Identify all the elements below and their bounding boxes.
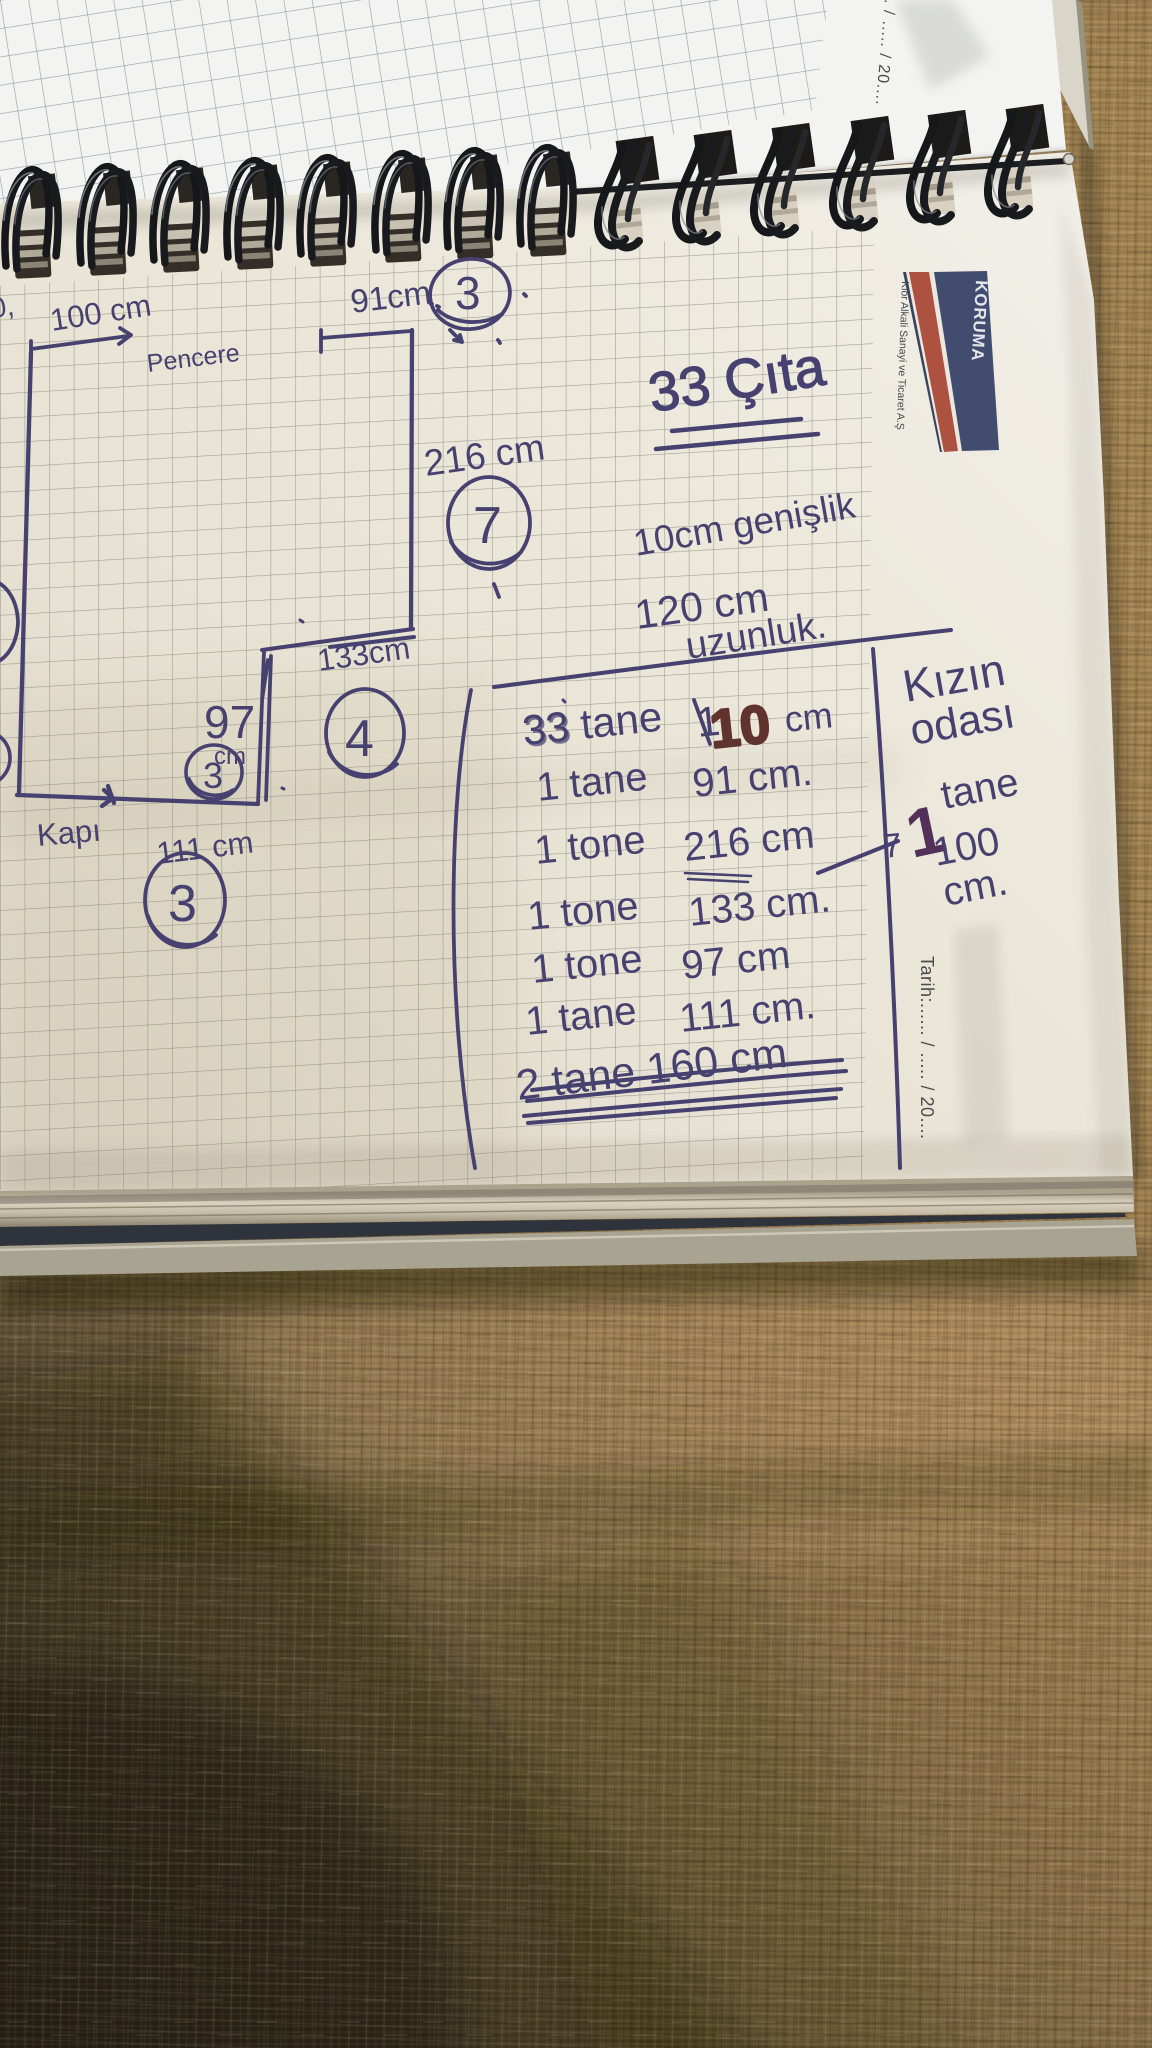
svg-text:Kapı: Kapı: [36, 813, 103, 853]
svg-text:97: 97: [204, 696, 255, 748]
svg-text:10: 10: [707, 694, 773, 760]
svg-text:4: 4: [345, 710, 374, 768]
svg-text:3: 3: [455, 267, 481, 319]
svg-text:3: 3: [203, 755, 223, 796]
svg-text:3: 3: [168, 875, 197, 933]
svg-text:cm: cm: [783, 694, 835, 740]
svg-text:7: 7: [473, 497, 502, 555]
svg-text:Tarih:...... / ..... / 20....: Tarih:...... / ..... / 20....: [917, 956, 937, 1140]
svg-text:7: 7: [881, 826, 904, 866]
svg-text:33: 33: [522, 704, 573, 756]
